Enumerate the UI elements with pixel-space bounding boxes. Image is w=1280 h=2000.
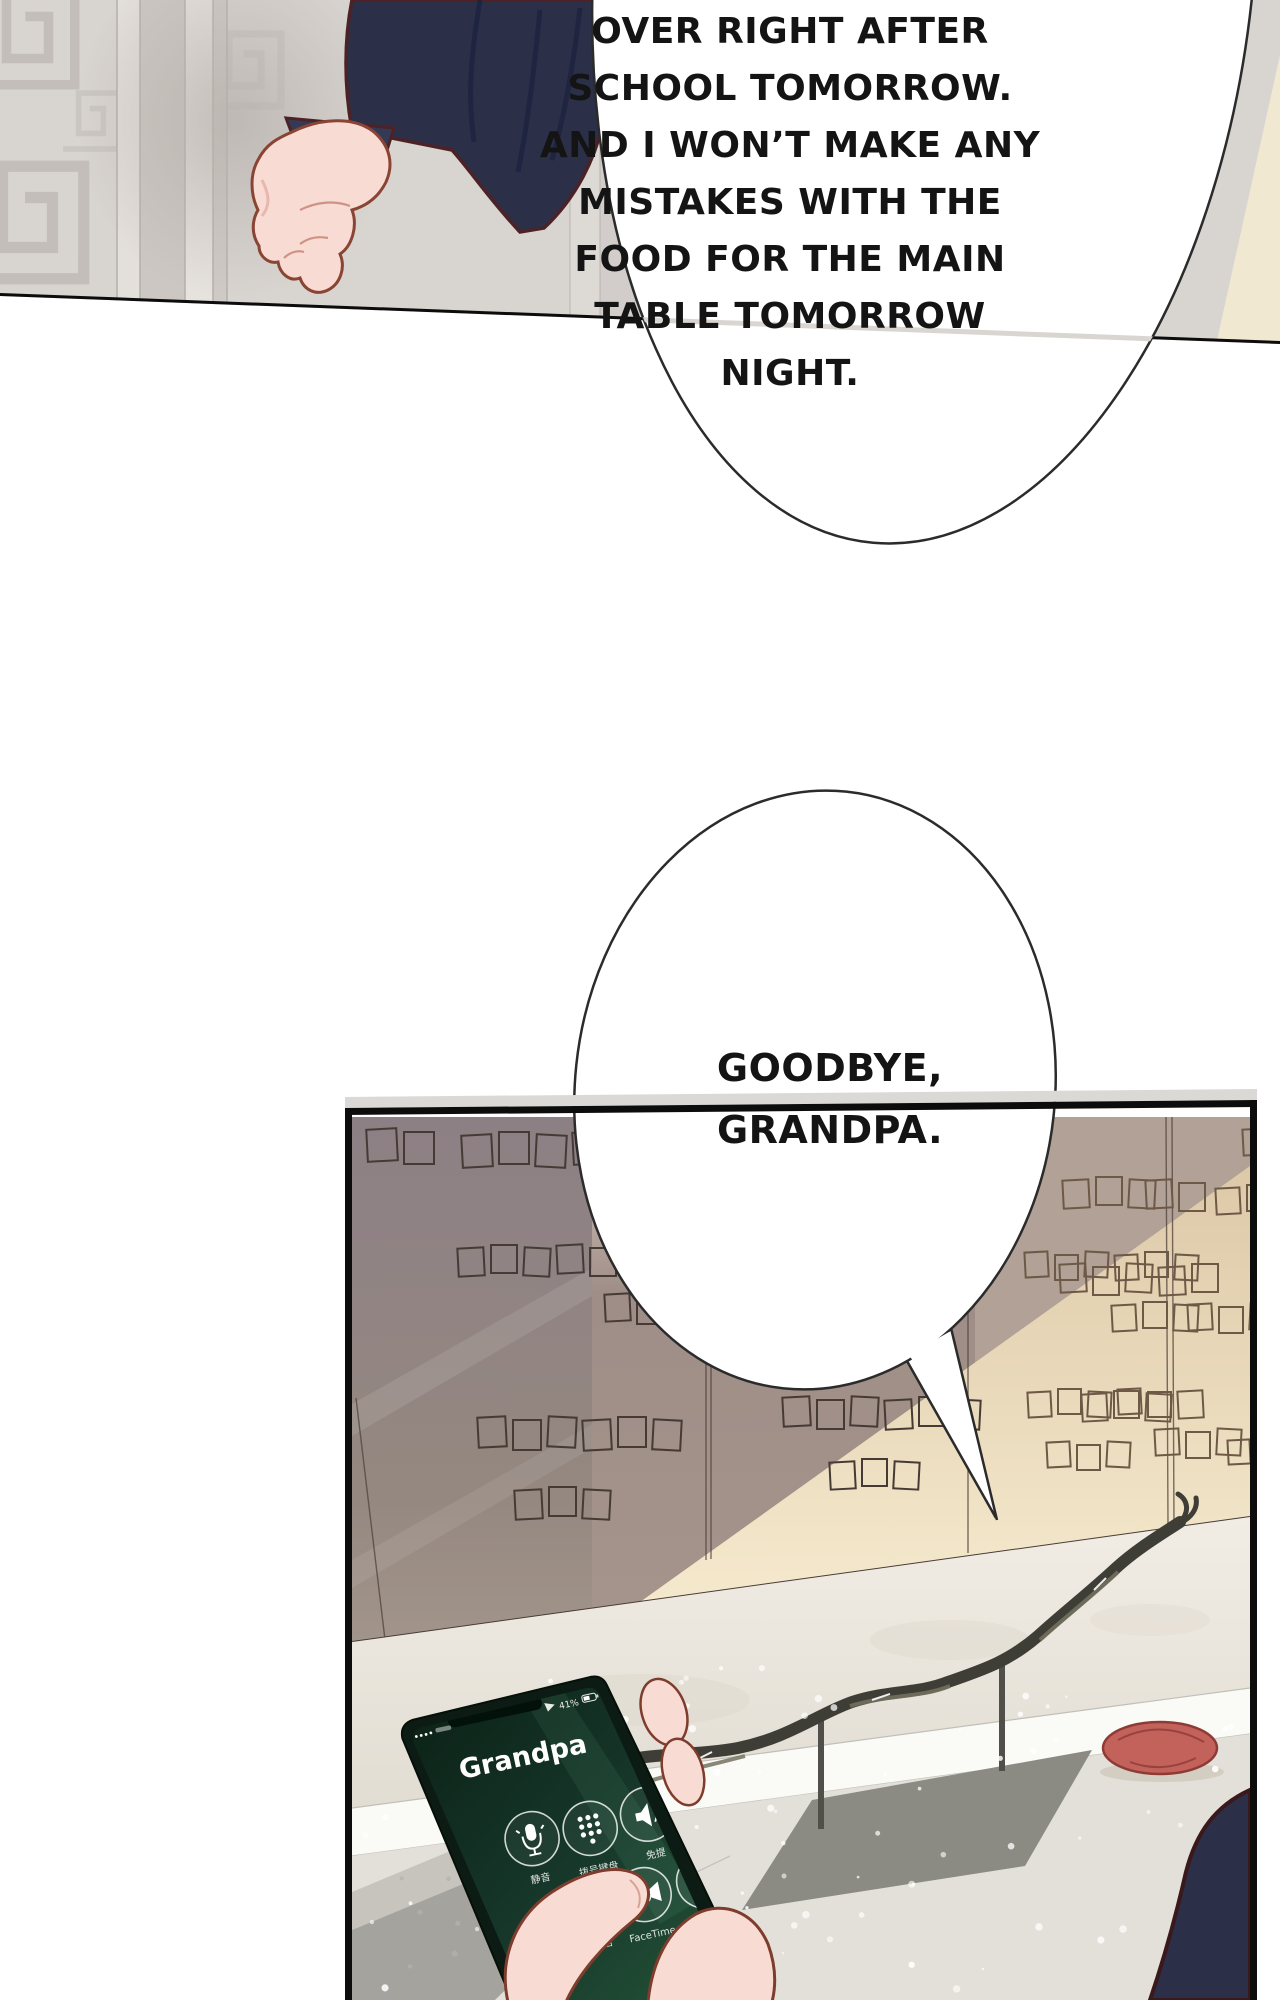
sculpture-stand — [818, 1719, 824, 1829]
panel-border-left — [345, 1108, 352, 2000]
speech-bubble-1-text: OVER RIGHT AFTER SCHOOL TOMORROW. AND I … — [505, 3, 1075, 402]
speech-bubble-2-text: GOODBYE, GRANDPA. — [630, 1037, 1030, 1161]
panel-border-right — [1250, 1100, 1257, 2000]
red-cushion — [1103, 1722, 1217, 1774]
comic-page: 41% Grandpa — [0, 0, 1280, 2000]
sculpture-stand — [999, 1665, 1005, 1771]
